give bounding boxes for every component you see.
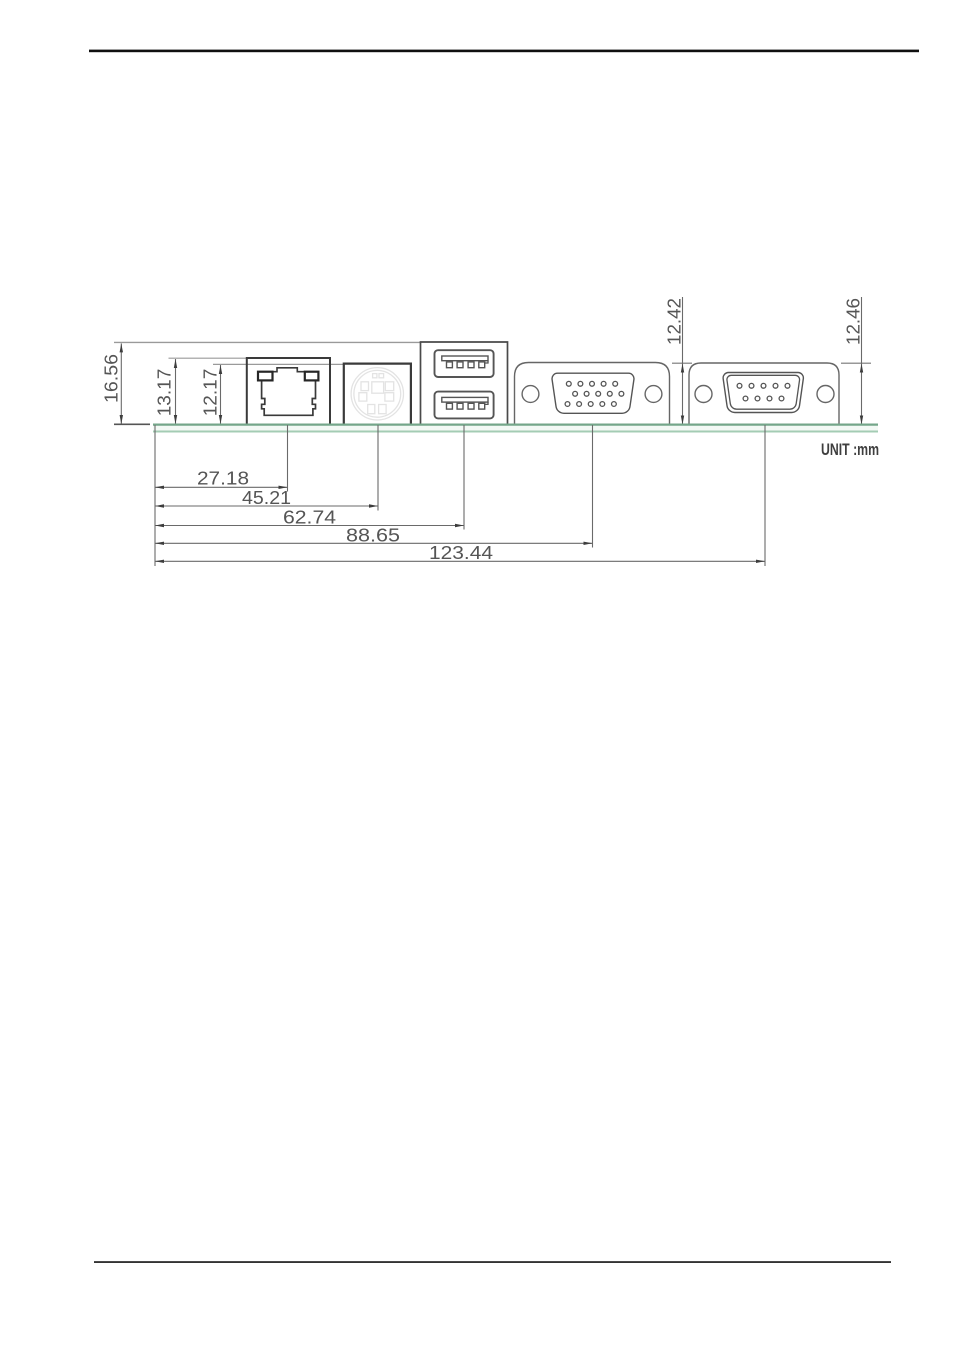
svg-text:12.42: 12.42 [664, 298, 685, 345]
svg-text:12.17: 12.17 [200, 369, 221, 417]
svg-text:62.74: 62.74 [283, 507, 336, 528]
svg-text:12.46: 12.46 [843, 298, 864, 345]
svg-text:16.56: 16.56 [101, 354, 122, 403]
svg-text:88.65: 88.65 [346, 525, 400, 546]
svg-text:13.17: 13.17 [154, 369, 175, 417]
svg-text:123.44: 123.44 [429, 542, 493, 563]
svg-text:45.21: 45.21 [242, 487, 291, 508]
svg-text:27.18: 27.18 [197, 468, 249, 489]
svg-text:UNIT :mm: UNIT :mm [821, 440, 879, 459]
